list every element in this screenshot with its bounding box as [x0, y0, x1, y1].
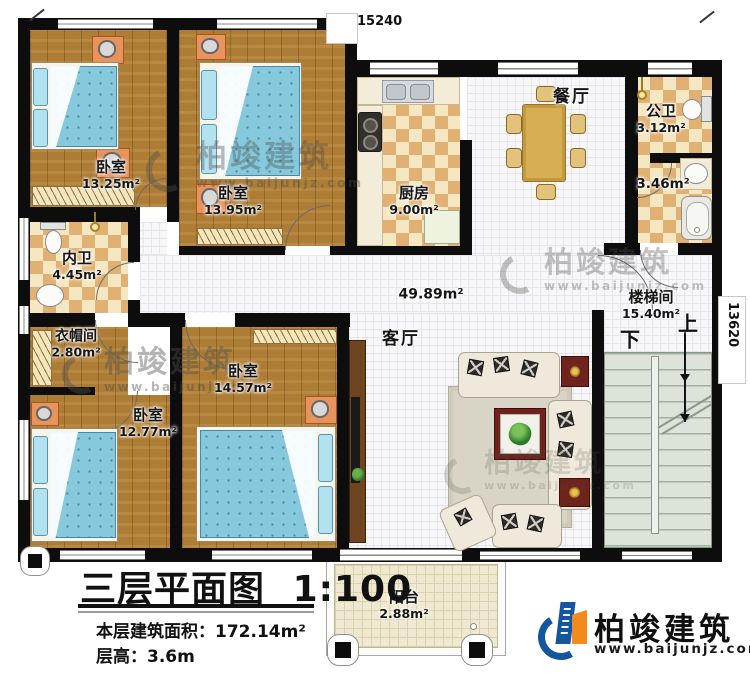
window [480, 551, 580, 560]
nightstand [196, 34, 226, 60]
pillow [33, 68, 48, 106]
plan-title: 三层平面图 1:100 [80, 560, 412, 612]
wall [18, 207, 135, 222]
nightstand [92, 36, 124, 64]
wardrobe [197, 228, 283, 245]
dining-chair [570, 114, 586, 134]
label-bedroom2: 卧室 13.95m² [204, 185, 262, 217]
light-cord [94, 212, 96, 222]
sink-icon [36, 284, 64, 307]
wall [345, 18, 357, 255]
star-emblem-icon [570, 366, 580, 378]
dining-chair [506, 148, 522, 168]
sink-basin [386, 84, 406, 100]
label-bedroom4: 卧室 12.77m² [119, 407, 177, 439]
cushion [527, 515, 545, 533]
label-stairwell: 楼梯间 15.40m² [622, 289, 680, 321]
pillow [318, 486, 333, 534]
pillow [318, 434, 333, 482]
dining-table [522, 104, 566, 182]
wardrobe [253, 329, 337, 344]
wall [18, 313, 95, 327]
window [212, 550, 312, 560]
side-table [561, 356, 589, 387]
burner-icon [363, 135, 378, 150]
dining-chair [536, 184, 556, 200]
wall [235, 313, 350, 327]
ceiling-light-icon [90, 222, 100, 232]
watermark-brand-text: 柏竣建筑 [484, 450, 636, 477]
wall [625, 60, 638, 243]
window [648, 62, 692, 75]
label-bath-vanity: 3.46m² [636, 177, 689, 193]
pillow [201, 70, 217, 120]
toilet-tank [40, 222, 66, 230]
balcony-drain [470, 623, 477, 630]
window [19, 218, 29, 280]
sink-basin [410, 84, 430, 100]
watermark-url-text: www.baijunjz.com [484, 479, 636, 492]
stair-down-label: 下 [620, 324, 640, 353]
wall [460, 140, 472, 255]
column-core [335, 642, 351, 658]
floor-area-line: 本层建筑面积：172.14m² [96, 617, 306, 642]
watermark-brand-text: 柏竣建筑 [544, 248, 707, 277]
burner-icon [363, 118, 378, 133]
label-kitchen: 厨房 9.00m² [389, 185, 438, 217]
dimension-tick [699, 11, 714, 24]
window [19, 306, 29, 334]
cushion [557, 411, 575, 429]
bathtub [681, 196, 712, 240]
label-cloakroom: 衣帽间 2.80m² [51, 328, 100, 359]
floor-height-line: 层高：3.6m [96, 642, 195, 667]
label-living-area: 49.89m² [398, 287, 463, 304]
stair-arrow-icon [680, 414, 690, 422]
column [327, 634, 359, 666]
cushion [493, 356, 510, 373]
column-core [469, 642, 485, 658]
nightstand [31, 402, 59, 426]
watermark: 柏竣建筑 www.baijunjz.com [544, 248, 707, 293]
window [60, 550, 145, 560]
window [370, 62, 438, 75]
lamp-icon [311, 400, 330, 418]
wall [167, 30, 179, 222]
kitchen-sink [382, 80, 434, 103]
dining-chair [506, 114, 522, 134]
window [58, 19, 153, 29]
stair-stringer [651, 356, 659, 534]
stair-arrow-icon [680, 374, 690, 382]
brand-logo-building-icon [572, 610, 587, 644]
window [19, 420, 29, 500]
drain-icon [694, 227, 700, 233]
pillow [33, 436, 48, 484]
plant-icon [352, 468, 364, 481]
column-core [28, 554, 43, 569]
window [498, 62, 578, 75]
ceiling-light-icon [637, 90, 647, 100]
watermark-brand-text: 柏竣建筑 [196, 142, 364, 173]
label-bedroom1: 卧室 13.25m² [82, 159, 140, 191]
label-bedroom3: 卧室 14.57m² [214, 363, 272, 395]
label-dining: 餐厅 [553, 87, 591, 107]
cushion [501, 513, 518, 530]
pillow [33, 488, 48, 536]
dimension-leader-box [326, 13, 358, 44]
lamp-icon [98, 40, 117, 58]
dimension-right: 13620 [725, 302, 740, 347]
window [622, 551, 692, 560]
column [20, 546, 50, 576]
stair-up-label: 上 [678, 308, 698, 337]
label-ensuite: 内卫 4.45m² [52, 250, 101, 282]
window [217, 19, 317, 29]
label-living: 客厅 [382, 329, 420, 349]
label-public-bath: 公卫 3.12m² [636, 103, 685, 135]
light-cord [641, 77, 643, 91]
dimension-top: 15240 [357, 14, 402, 29]
wall [128, 207, 140, 262]
dining-chair [570, 148, 586, 168]
wall [337, 313, 349, 548]
column [461, 634, 493, 666]
wall [179, 246, 285, 255]
wall [138, 313, 185, 327]
lamp-icon [36, 406, 52, 421]
cloakroom-shelves [32, 330, 52, 386]
pillow [33, 109, 48, 147]
nightstand [305, 396, 337, 424]
cushion [467, 359, 484, 376]
wall [592, 310, 604, 562]
lamp-icon [201, 38, 218, 54]
floor-plan-canvas: 柏竣建筑 www.baijunjz.com 柏竣建筑 www.baijunjz.… [0, 0, 750, 676]
watermark: 柏竣建筑 www.baijunjz.com [484, 450, 636, 492]
toilet-tank [701, 96, 712, 122]
brand-url: www.baijunjz.com [594, 641, 750, 657]
